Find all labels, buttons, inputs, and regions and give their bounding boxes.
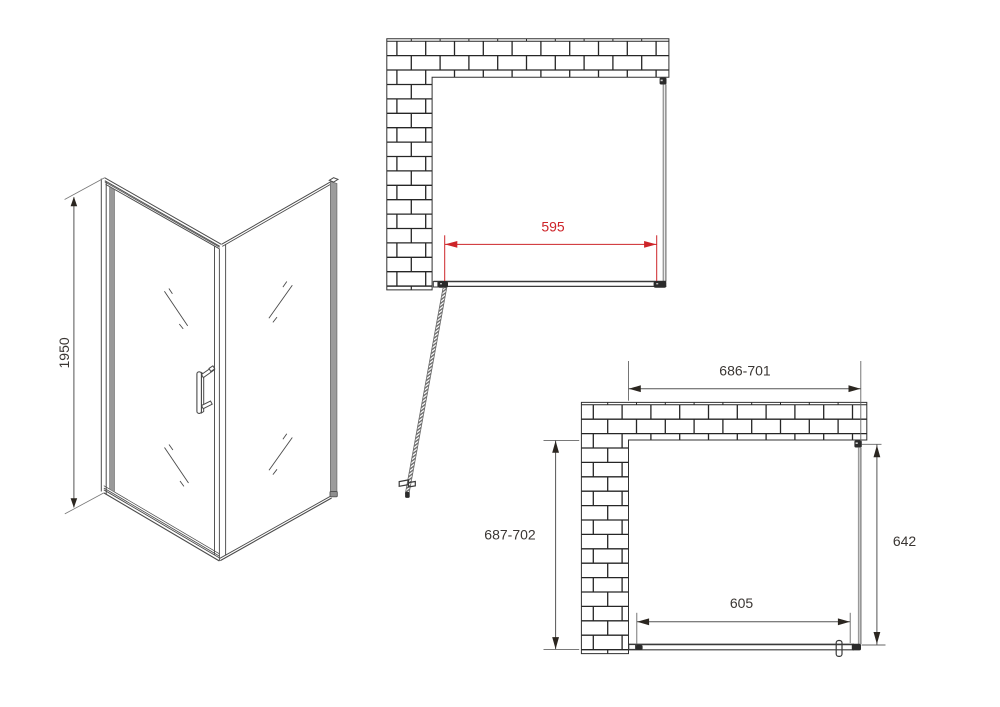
svg-text:595: 595: [541, 218, 565, 234]
svg-text:605: 605: [730, 595, 754, 611]
svg-text:642: 642: [893, 533, 917, 549]
svg-text:1950: 1950: [56, 337, 72, 368]
svg-text:687-702: 687-702: [484, 527, 536, 543]
svg-text:686-701: 686-701: [719, 362, 771, 378]
